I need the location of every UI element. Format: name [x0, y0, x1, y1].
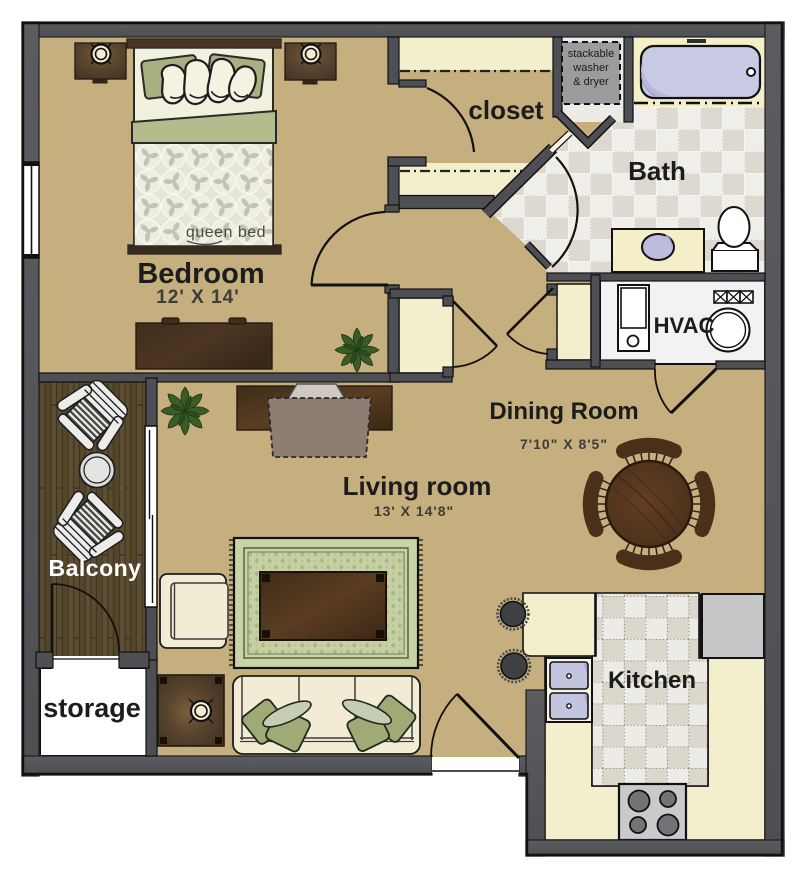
svg-text:13' X 14'8": 13' X 14'8"	[374, 503, 454, 519]
svg-text:washer: washer	[572, 62, 609, 74]
svg-text:Kitchen: Kitchen	[608, 667, 696, 694]
svg-text:closet: closet	[468, 95, 543, 125]
svg-text:Balcony: Balcony	[49, 555, 142, 581]
svg-text:12' X 14': 12' X 14'	[156, 287, 240, 308]
svg-text:storage: storage	[43, 693, 141, 723]
svg-text:Bedroom: Bedroom	[137, 258, 264, 290]
svg-text:HVAC: HVAC	[654, 313, 715, 338]
svg-text:7'10" X 8'5": 7'10" X 8'5"	[520, 436, 608, 452]
svg-text:stackable: stackable	[568, 48, 614, 60]
svg-text:queen bed: queen bed	[186, 224, 266, 241]
svg-text:& dryer: & dryer	[573, 76, 609, 88]
svg-text:Dining Room: Dining Room	[489, 398, 638, 425]
svg-text:Living room: Living room	[343, 471, 492, 501]
svg-text:Bath: Bath	[628, 156, 686, 186]
